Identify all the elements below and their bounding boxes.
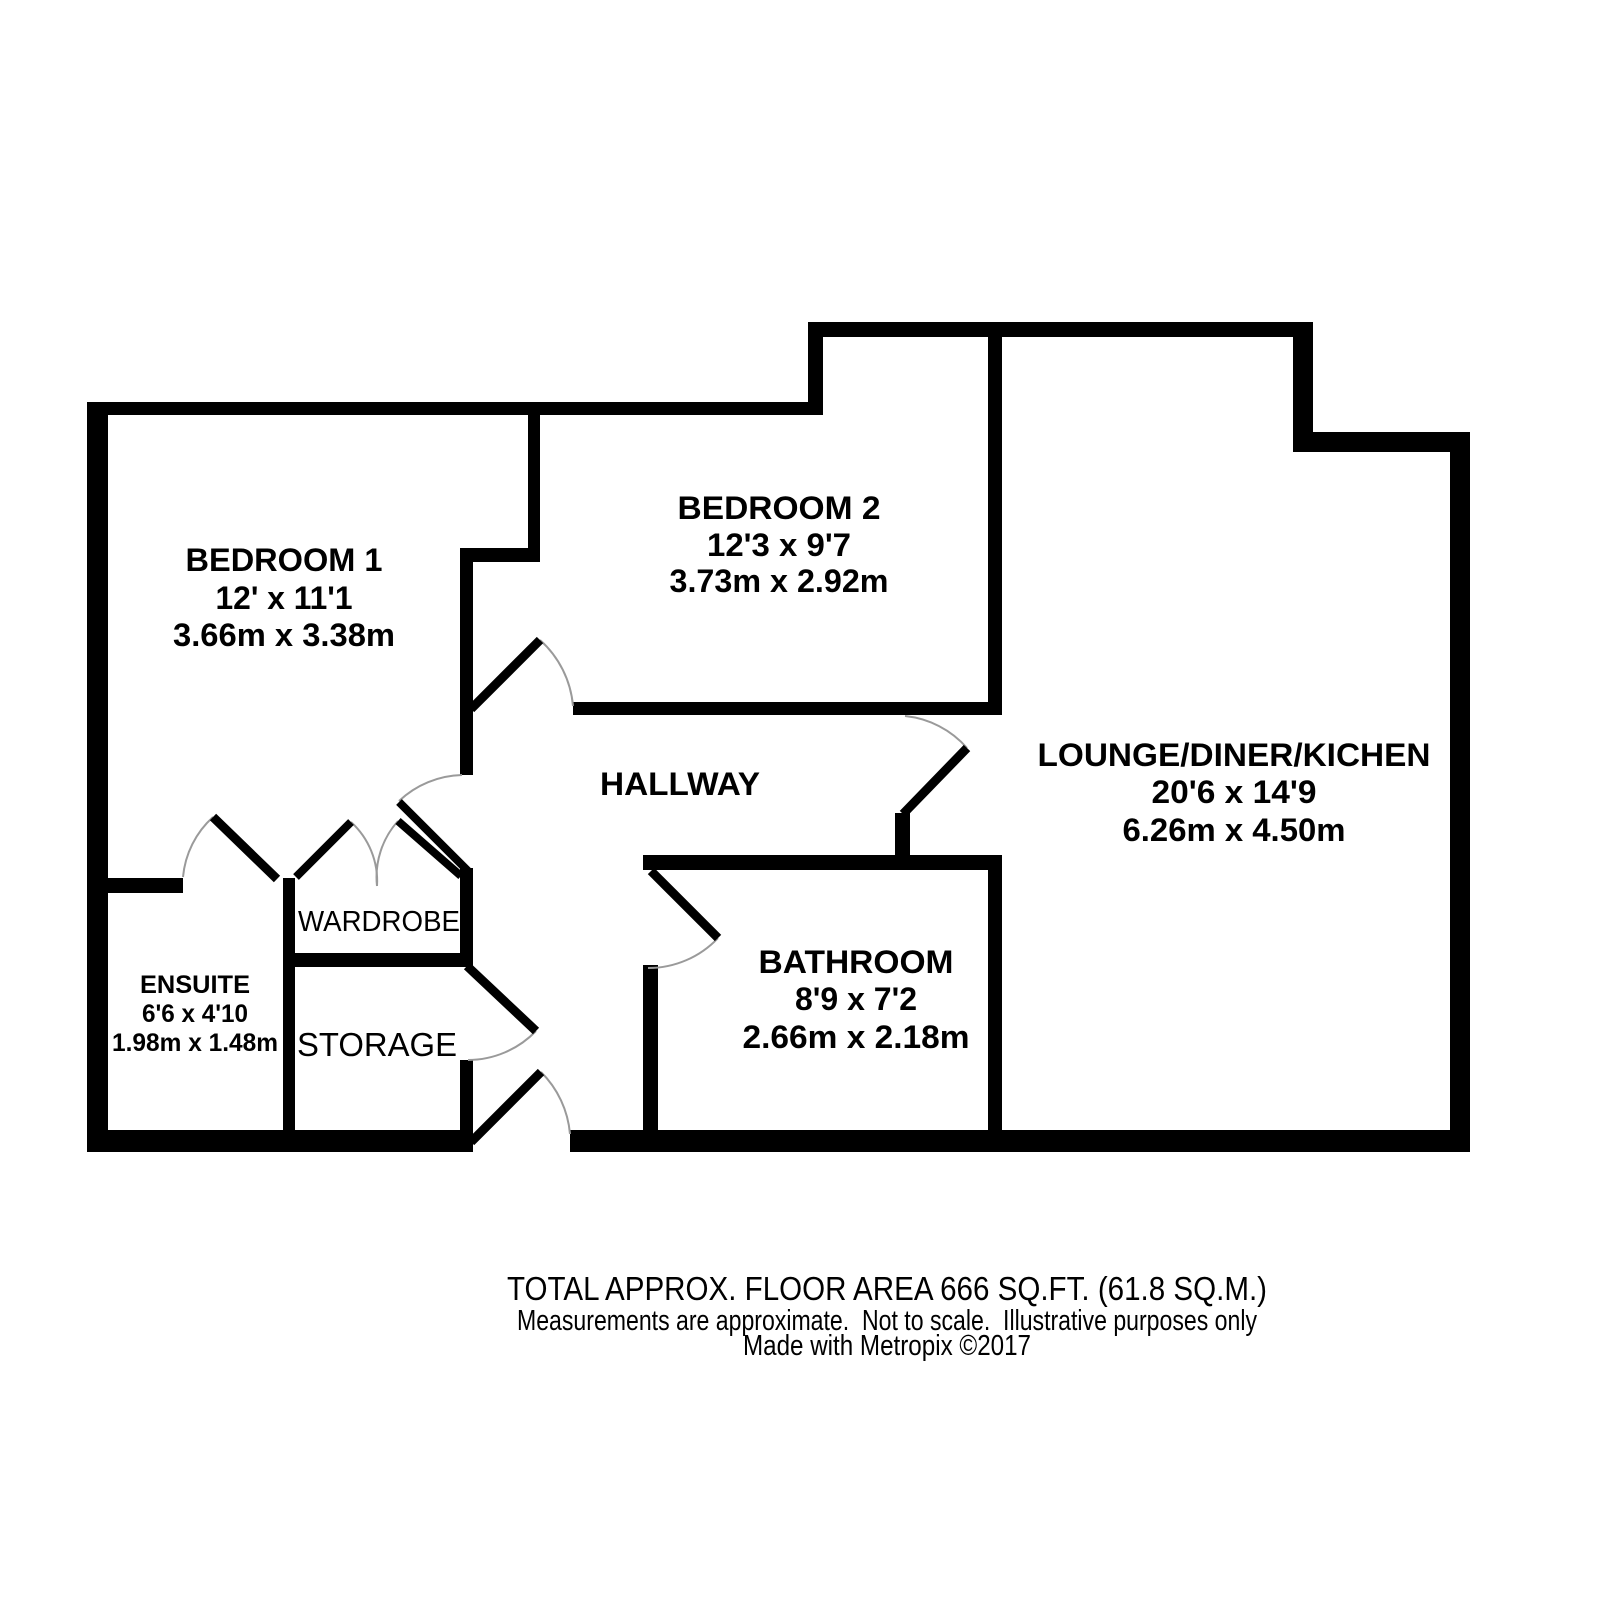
bedroom2-door-arc bbox=[540, 640, 573, 706]
storage-name: STORAGE bbox=[297, 1026, 457, 1063]
bedroom1-size-metric: 3.66m x 3.38m bbox=[173, 617, 395, 653]
wall-wardrobe-right bbox=[460, 868, 473, 967]
wall-step-band bbox=[1293, 432, 1470, 452]
footer-credit: Made with Metropix ©2017 bbox=[743, 1330, 1031, 1362]
lounge-size-imperial: 20'6 x 14'9 bbox=[1152, 774, 1317, 810]
footer-total-area: TOTAL APPROX. FLOOR AREA 666 SQ.FT. (61.… bbox=[507, 1270, 1267, 1307]
wall-storage-right bbox=[460, 1060, 473, 1130]
storage-door-leaf bbox=[467, 966, 536, 1031]
bedroom2-size-metric: 3.73m x 2.92m bbox=[670, 563, 889, 599]
room-labels: BEDROOM 1 12' x 11'1 3.66m x 3.38m BEDRO… bbox=[112, 490, 1431, 1063]
wall-bedroom1-right bbox=[460, 548, 473, 775]
footer: TOTAL APPROX. FLOOR AREA 666 SQ.FT. (61.… bbox=[507, 1270, 1267, 1362]
bathroom-name: BATHROOM bbox=[759, 944, 954, 980]
lounge-door-arc bbox=[905, 716, 967, 748]
ensuite-size-metric: 1.98m x 1.48m bbox=[112, 1029, 278, 1057]
lounge-size-metric: 6.26m x 4.50m bbox=[1123, 812, 1346, 848]
storage-door-arc bbox=[468, 1031, 536, 1060]
entrance-door-leaf bbox=[471, 1072, 541, 1142]
wardrobe-left-door-leaf bbox=[296, 822, 351, 877]
bathroom-door-arc bbox=[648, 938, 718, 968]
ensuite-door-leaf bbox=[213, 817, 277, 879]
bathroom-door-leaf bbox=[651, 871, 718, 938]
ensuite-door-arc bbox=[183, 817, 213, 877]
wall-bedroom1-step-vertical bbox=[528, 402, 540, 562]
wall-bathroom-top bbox=[643, 855, 1002, 870]
bathroom-size-metric: 2.66m x 2.18m bbox=[743, 1019, 970, 1055]
bedroom1-name: BEDROOM 1 bbox=[186, 542, 383, 578]
wall-top-right bbox=[808, 322, 1313, 337]
lounge-label: LOUNGE/DINER/KICHEN 20'6 x 14'9 6.26m x … bbox=[1038, 737, 1431, 848]
floorplan-page: BEDROOM 1 12' x 11'1 3.66m x 3.38m BEDRO… bbox=[0, 0, 1600, 1600]
storage-label: STORAGE bbox=[297, 1026, 457, 1063]
bedroom1-size-imperial: 12' x 11'1 bbox=[216, 580, 353, 616]
wall-bedroom2-bottom bbox=[573, 702, 1002, 715]
lounge-name: LOUNGE/DINER/KICHEN bbox=[1038, 737, 1431, 773]
wall-right bbox=[1450, 432, 1470, 1152]
bathroom-size-imperial: 8'9 x 7'2 bbox=[795, 981, 917, 1017]
ensuite-name: ENSUITE bbox=[140, 971, 250, 999]
floorplan-drawing: BEDROOM 1 12' x 11'1 3.66m x 3.38m BEDRO… bbox=[0, 0, 1600, 1600]
lounge-door-leaf bbox=[903, 748, 967, 814]
wall-bathroom-left bbox=[643, 965, 658, 1130]
bedroom1-door-leaf bbox=[399, 802, 468, 871]
entrance-door-arc bbox=[541, 1072, 570, 1134]
door-leaves bbox=[213, 640, 967, 1142]
wall-bottom-left bbox=[87, 1130, 473, 1152]
wall-bathroom-lounge-divider bbox=[988, 870, 1002, 1130]
wall-bedroom2-lounge-divider bbox=[988, 337, 1002, 715]
wardrobe-name: WARDROBE bbox=[298, 906, 460, 938]
bedroom1-door-arc bbox=[399, 775, 462, 801]
bedroom2-door-leaf bbox=[471, 640, 540, 709]
bedroom2-label: BEDROOM 2 12'3 x 9'7 3.73m x 2.92m bbox=[670, 490, 889, 599]
ensuite-label: ENSUITE 6'6 x 4'10 1.98m x 1.48m bbox=[112, 971, 278, 1057]
wall-wardrobe-storage-divider bbox=[283, 953, 473, 967]
wardrobe-right-door-arc bbox=[377, 821, 398, 886]
wall-ensuite-storage-divider bbox=[283, 878, 295, 1130]
hallway-name: HALLWAY bbox=[600, 766, 760, 802]
bedroom2-size-imperial: 12'3 x 9'7 bbox=[707, 527, 851, 563]
hallway-label: HALLWAY bbox=[600, 766, 760, 802]
ensuite-size-imperial: 6'6 x 4'10 bbox=[142, 1000, 248, 1028]
bathroom-label: BATHROOM 8'9 x 7'2 2.66m x 2.18m bbox=[743, 944, 970, 1055]
bedroom2-name: BEDROOM 2 bbox=[678, 490, 881, 526]
bedroom1-label: BEDROOM 1 12' x 11'1 3.66m x 3.38m bbox=[173, 542, 395, 653]
wardrobe-left-door-arc bbox=[351, 822, 377, 886]
wall-top-left bbox=[87, 402, 808, 415]
wall-bottom-right bbox=[570, 1130, 1470, 1152]
wardrobe-label: WARDROBE bbox=[298, 906, 460, 938]
wall-ensuite-top bbox=[87, 878, 183, 893]
wall-left bbox=[87, 402, 108, 1152]
